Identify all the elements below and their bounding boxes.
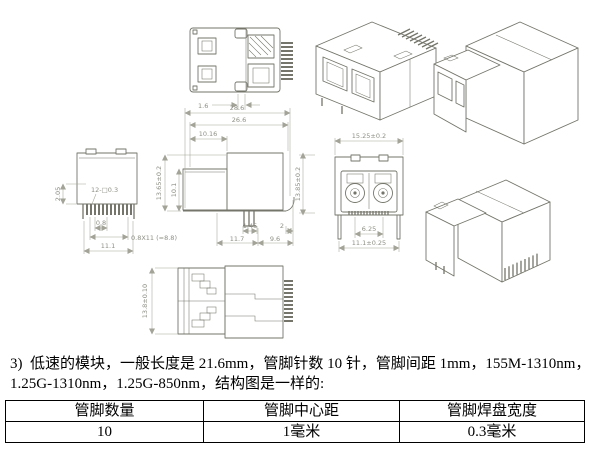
- dim-front-length: 11.7: [230, 235, 244, 243]
- section-text-line2: 1.25G-1310nm，1.25G-850nm，结构图是一样的:: [10, 375, 324, 394]
- dim-pin-exposed: 2.05: [54, 187, 62, 201]
- section-text-line1: 3) 低速的模块，一般长度是 21.6mm，管脚针数 10 针，管脚间距 1mm…: [10, 355, 590, 374]
- pin-comb-bottom: [284, 281, 293, 321]
- dim-leg-span: 11.1±0.25: [352, 239, 386, 247]
- technical-drawing: 1.6 28.6 26.6 10.16 13.65±0.2 10.1 13.85…: [0, 0, 603, 352]
- dim-pin-spec: 12-□0.3: [91, 186, 118, 194]
- lc-front-view: 15.25±0.2 6.25 11.1±0.25: [335, 132, 403, 252]
- dim-port-pitch: 6.25: [362, 225, 376, 233]
- bottom-view: 13.8±0.10: [141, 266, 293, 338]
- pin-comb-front: [87, 204, 131, 215]
- dim-overall-length: 28.6: [230, 104, 244, 112]
- pin-spec-table: 管脚数量 管脚中心距 管脚焊盘宽度 10 1毫米 0.3毫米: [5, 400, 585, 443]
- front-view: 2.05 12-□0.3 0.8 0.8X11 (=8.8) 11.1: [54, 149, 177, 254]
- lc-port-right: [374, 174, 393, 203]
- top-view: 1.6: [190, 28, 293, 110]
- header-pin-count: 管脚数量: [6, 401, 204, 422]
- header-pin-center-distance: 管脚中心距: [204, 401, 400, 422]
- dim-pin-row-width: 11.1: [101, 242, 115, 250]
- iso-view-bottom: [426, 180, 550, 282]
- dim-inner-height: 10.1: [170, 183, 178, 197]
- lc-port-left: [346, 174, 365, 203]
- iso-view-front: [316, 22, 438, 120]
- table-header-row: 管脚数量 管脚中心距 管脚焊盘宽度: [6, 401, 585, 422]
- cell-pin-count: 10: [6, 422, 204, 443]
- cell-pin-pad-width: 0.3毫米: [400, 422, 585, 443]
- dim-bottom-height: 13.8±0.10: [141, 284, 149, 318]
- dim-body-length: 26.6: [232, 116, 246, 124]
- dim-front-offset: 10.16: [199, 130, 218, 138]
- dim-front-width: 15.25±0.2: [352, 132, 386, 140]
- dim-pin-span: 0.8X11 (=8.8): [131, 234, 177, 242]
- header-pin-pad-width: 管脚焊盘宽度: [400, 401, 585, 422]
- side-view: 28.6 26.6 10.16 13.65±0.2 10.1 13.85±0.2…: [155, 104, 315, 246]
- dim-top-tab-width: 1.6: [198, 102, 208, 110]
- cell-pin-center-distance: 1毫米: [204, 422, 400, 443]
- iso-view-rear: [434, 22, 578, 144]
- dim-overall-height: 13.85±0.2: [294, 167, 302, 201]
- hatched-block: [248, 35, 274, 87]
- dim-pin-pitch: 0.8: [96, 219, 106, 227]
- pin-comb-top: [281, 43, 293, 79]
- table-row: 10 1毫米 0.3毫米: [6, 422, 585, 443]
- dim-body-height: 13.65±0.2: [155, 166, 163, 200]
- dim-tail-length: 2: [280, 222, 284, 230]
- dim-rear-length: 9.6: [270, 235, 280, 243]
- dim-pin-width: 1.45: [243, 222, 257, 230]
